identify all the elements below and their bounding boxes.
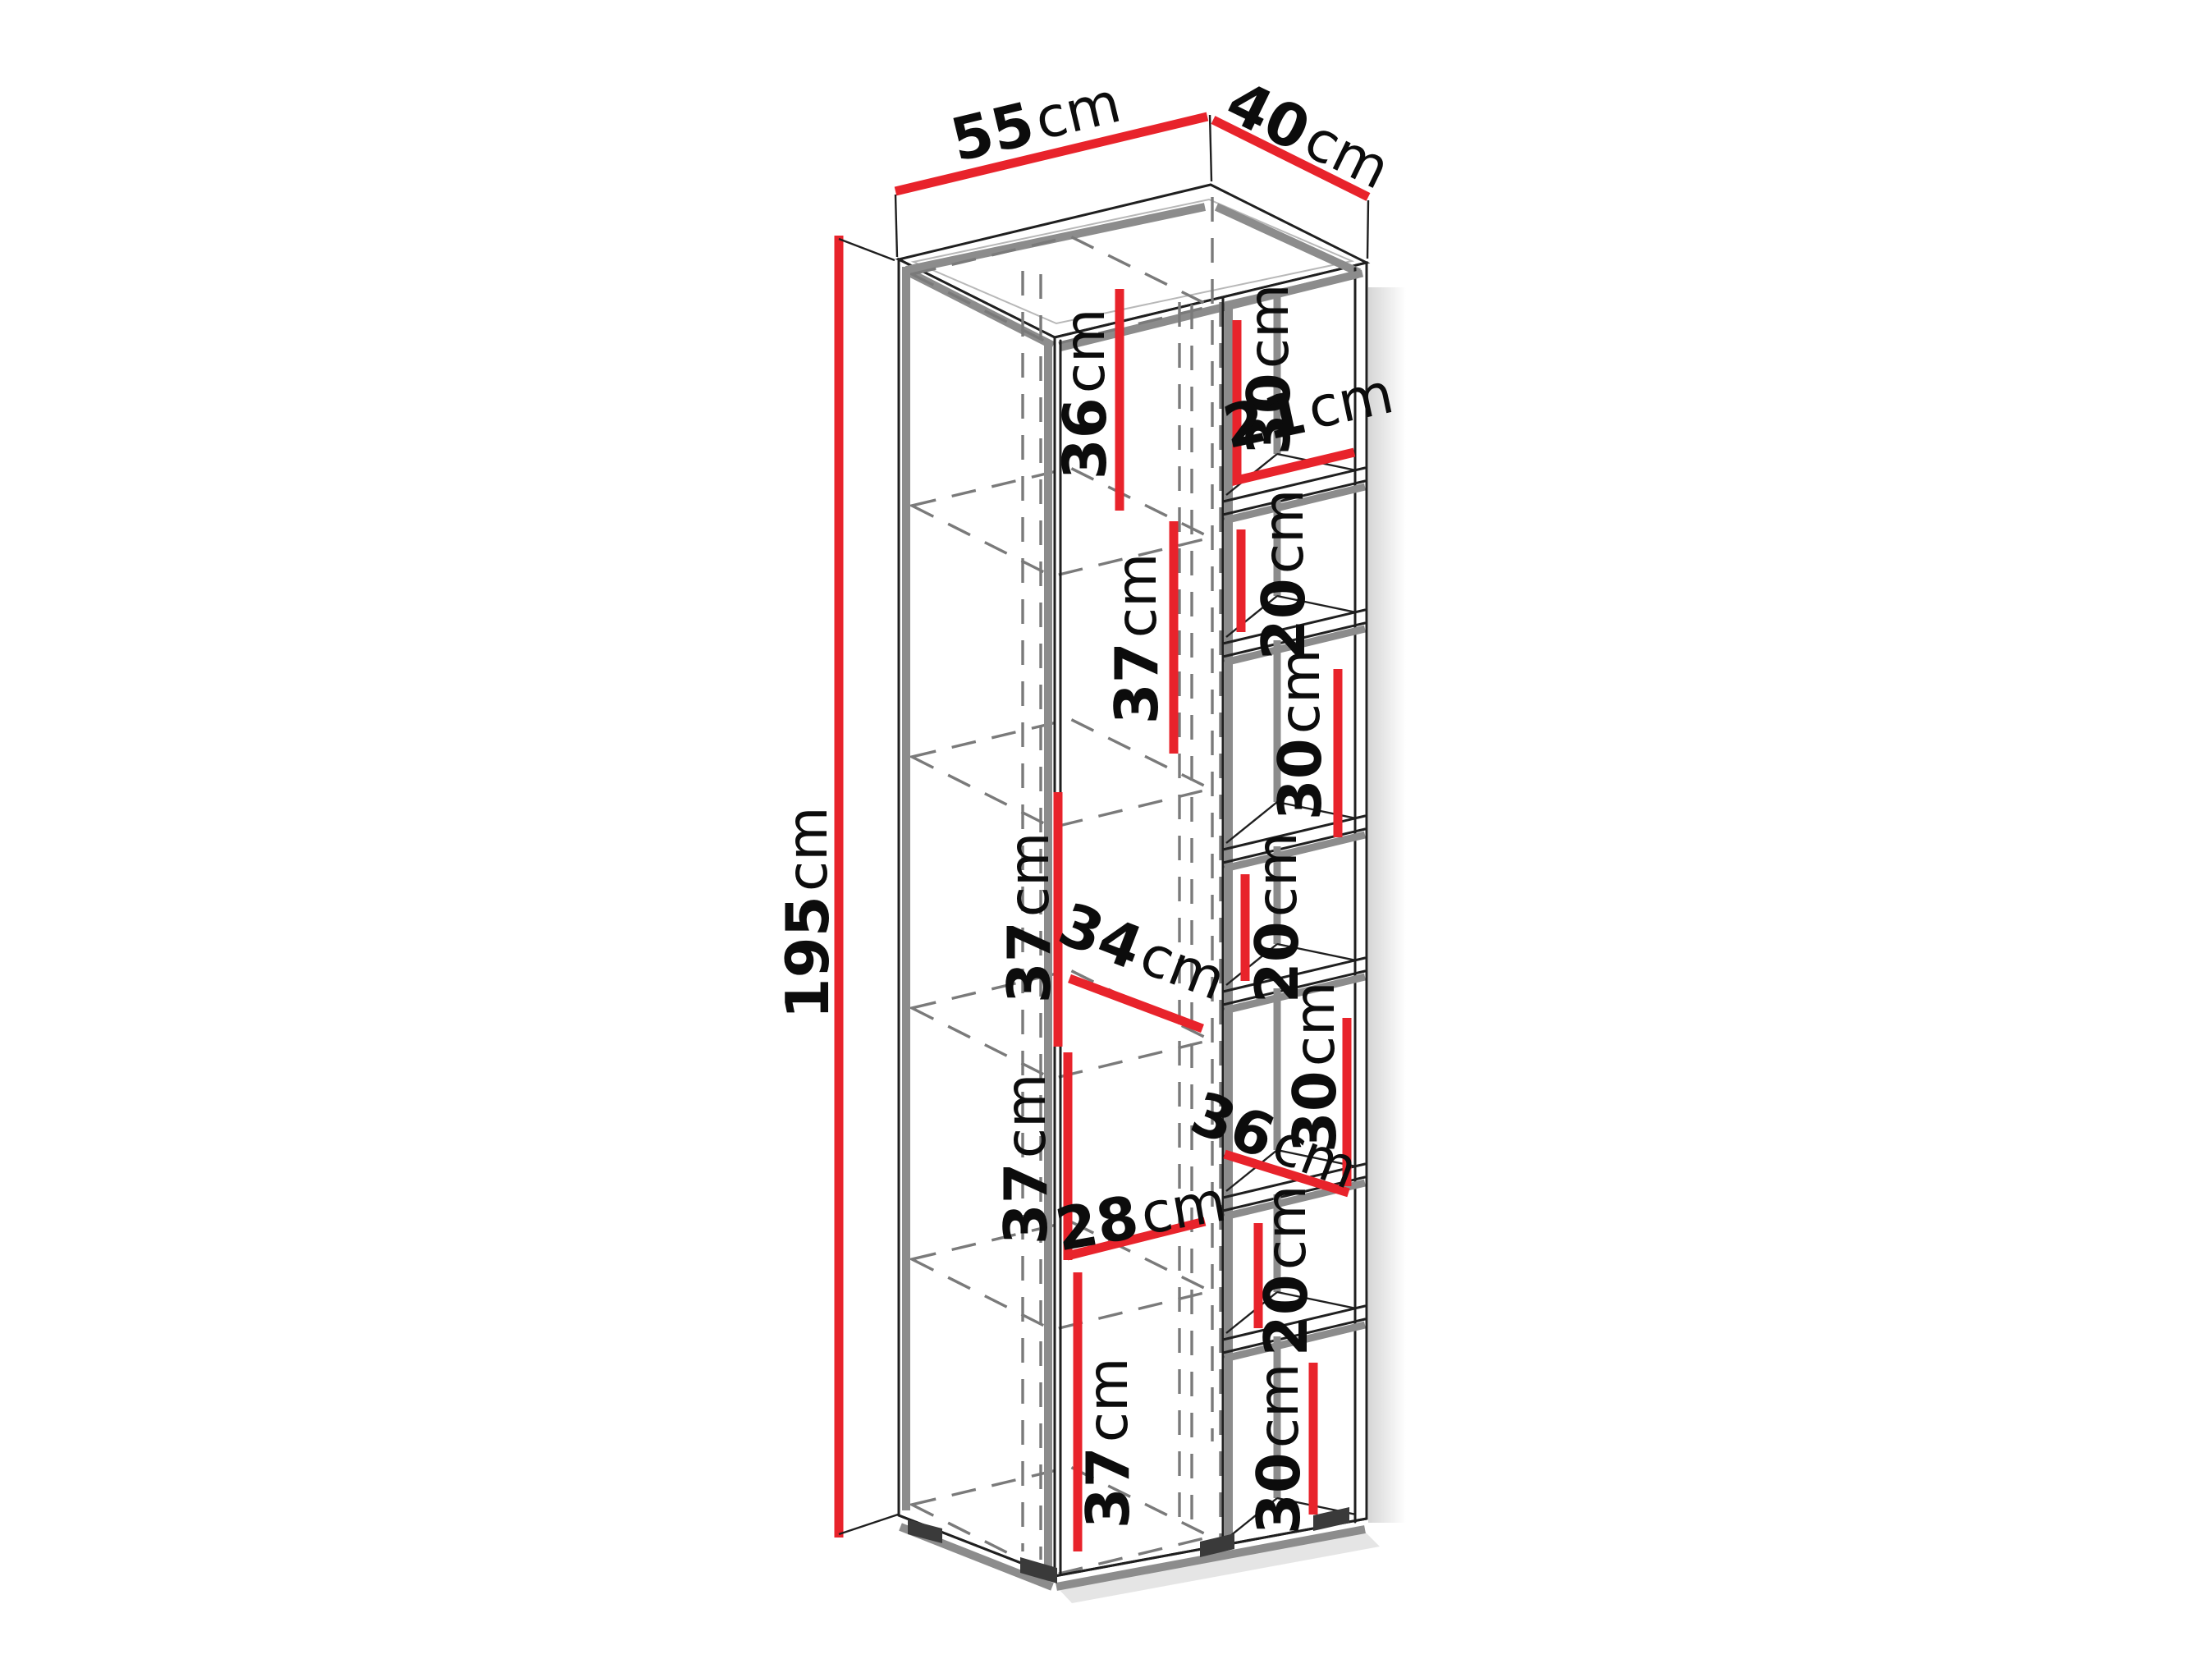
ext-tick-3 — [1367, 200, 1368, 259]
ext-tick-1 — [895, 195, 897, 257]
dim-overall-depth-label: 40cm — [1216, 66, 1401, 204]
dim-right-compartment-7-label: 30cm — [1244, 1363, 1313, 1535]
ext-tick-2 — [1210, 115, 1211, 181]
dim-left-compartment-4-label: 37cm — [992, 1074, 1060, 1245]
ext-tick-5 — [839, 1515, 898, 1534]
dim-overall-height-label: 195cm — [773, 807, 842, 1020]
right-side-shadow — [1368, 287, 1406, 1523]
cabinet-dimension-diagram: 55cm 40cm 195cm 36cm 37cm 37cm 37cm 37cm… — [0, 0, 2212, 1659]
dim-right-compartment-2-label: 20cm — [1249, 489, 1318, 661]
dim-right-compartment-4-label: 20cm — [1243, 832, 1312, 1004]
dim-left-compartment-3-label: 37cm — [995, 832, 1064, 1004]
dim-left-compartment-2-label: 37cm — [1102, 553, 1171, 725]
dim-right-compartment-3-label: 30cm — [1266, 649, 1335, 821]
diagram-page: 55cm 40cm 195cm 36cm 37cm 37cm 37cm 37cm… — [0, 0, 2212, 1659]
dim-left-compartment-5-label: 37cm — [1074, 1358, 1143, 1529]
dim-right-compartment-6-label: 20cm — [1252, 1185, 1321, 1357]
dim-left-compartment-1-label: 36cm — [1051, 309, 1120, 480]
ext-tick-4 — [839, 239, 895, 260]
